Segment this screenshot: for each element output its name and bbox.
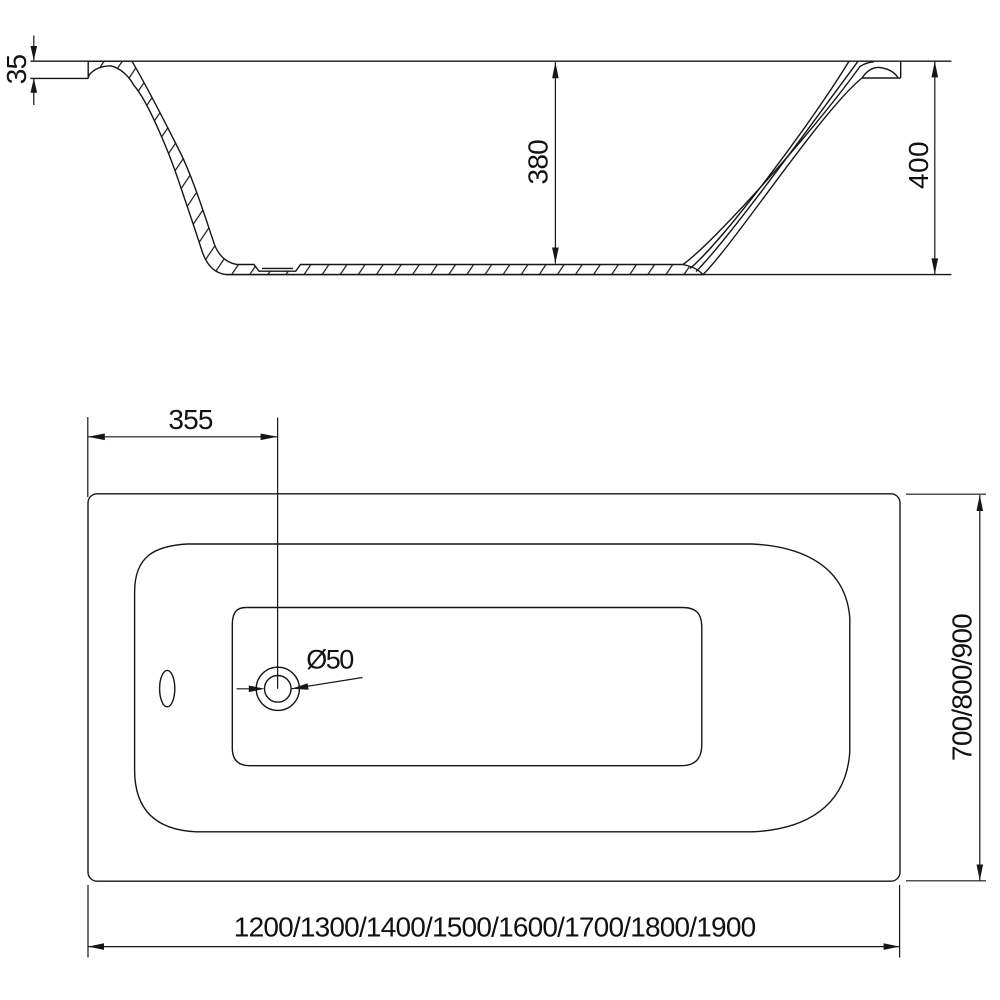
svg-text:355: 355 <box>168 404 213 435</box>
svg-text:1200/1300/1400/1500/1600/1700/: 1200/1300/1400/1500/1600/1700/1800/1900 <box>234 912 756 943</box>
svg-text:400: 400 <box>903 141 934 189</box>
svg-text:Ø50: Ø50 <box>306 645 353 675</box>
svg-text:380: 380 <box>523 140 554 185</box>
svg-text:700/800/900: 700/800/900 <box>947 614 978 761</box>
svg-text:35: 35 <box>1 55 32 85</box>
